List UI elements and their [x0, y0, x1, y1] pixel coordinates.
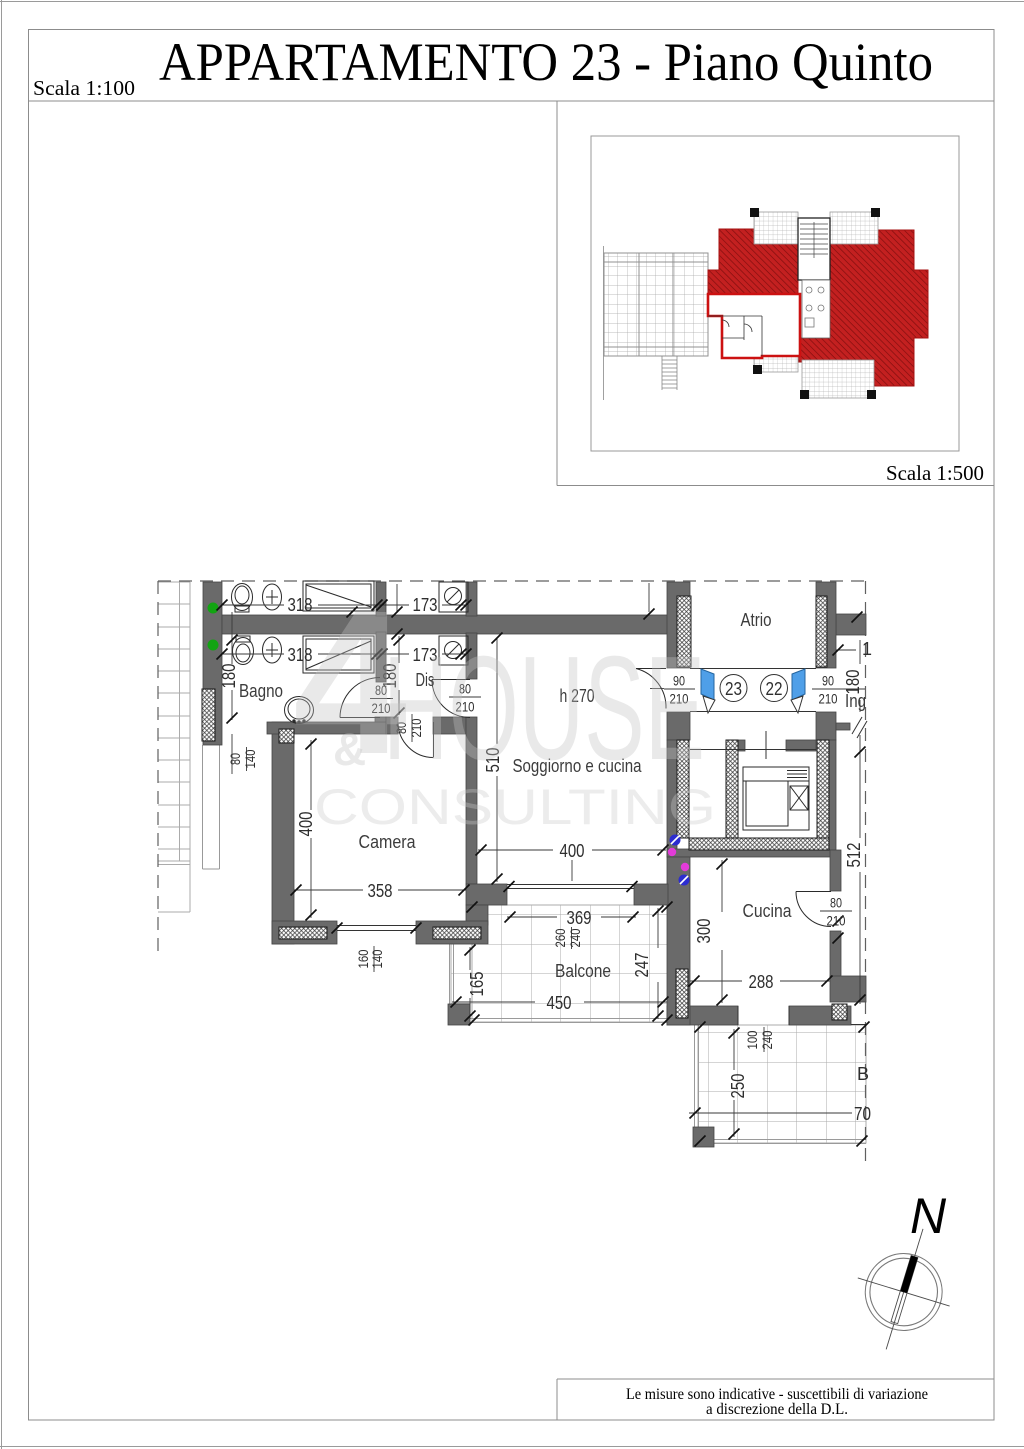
svg-text:240: 240: [567, 928, 583, 947]
svg-text:Atrio: Atrio: [741, 610, 772, 630]
svg-text:a discrezione della D.L.: a discrezione della D.L.: [706, 1401, 848, 1418]
svg-text:Cucina: Cucina: [743, 901, 793, 921]
svg-text:369: 369: [567, 908, 592, 928]
svg-text:240: 240: [759, 1030, 775, 1049]
svg-text:450: 450: [547, 993, 572, 1013]
svg-text:HOUSE: HOUSE: [383, 626, 705, 791]
svg-text:23: 23: [725, 679, 742, 699]
svg-text:Ing: Ing: [845, 691, 866, 711]
svg-text:358: 358: [368, 881, 393, 901]
svg-text:400: 400: [560, 841, 585, 861]
svg-text:80: 80: [227, 753, 243, 765]
svg-text:&: &: [333, 723, 366, 775]
svg-text:140: 140: [369, 949, 385, 968]
svg-text:180: 180: [219, 664, 239, 689]
svg-text:260: 260: [552, 928, 568, 947]
svg-text:300: 300: [694, 919, 714, 944]
svg-text:512: 512: [844, 843, 864, 868]
svg-text:Scala 1:100: Scala 1:100: [33, 76, 135, 100]
svg-text:B: B: [857, 1064, 869, 1084]
svg-text:APPARTAMENTO 23 - Piano Quinto: APPARTAMENTO 23 - Piano Quinto: [159, 32, 933, 92]
svg-text:100: 100: [744, 1030, 760, 1049]
svg-text:140: 140: [242, 749, 258, 768]
svg-text:210: 210: [827, 913, 846, 929]
svg-text:210: 210: [819, 691, 838, 707]
svg-text:247: 247: [632, 953, 652, 978]
svg-text:CONSULTING: CONSULTING: [314, 779, 716, 835]
svg-text:Balcone: Balcone: [555, 961, 611, 981]
svg-text:400: 400: [296, 812, 316, 837]
svg-text:90: 90: [822, 673, 834, 689]
svg-text:N: N: [910, 1188, 947, 1244]
svg-text:173: 173: [413, 595, 438, 615]
svg-text:Camera: Camera: [359, 832, 417, 852]
svg-text:Scala 1:500: Scala 1:500: [886, 461, 984, 485]
svg-text:80: 80: [830, 895, 842, 911]
svg-text:70: 70: [854, 1104, 871, 1124]
svg-text:1: 1: [862, 639, 872, 659]
svg-text:288: 288: [749, 972, 774, 992]
svg-text:Bagno: Bagno: [239, 681, 283, 701]
svg-text:165: 165: [467, 972, 487, 997]
svg-text:22: 22: [766, 679, 783, 699]
svg-text:250: 250: [728, 1074, 748, 1099]
